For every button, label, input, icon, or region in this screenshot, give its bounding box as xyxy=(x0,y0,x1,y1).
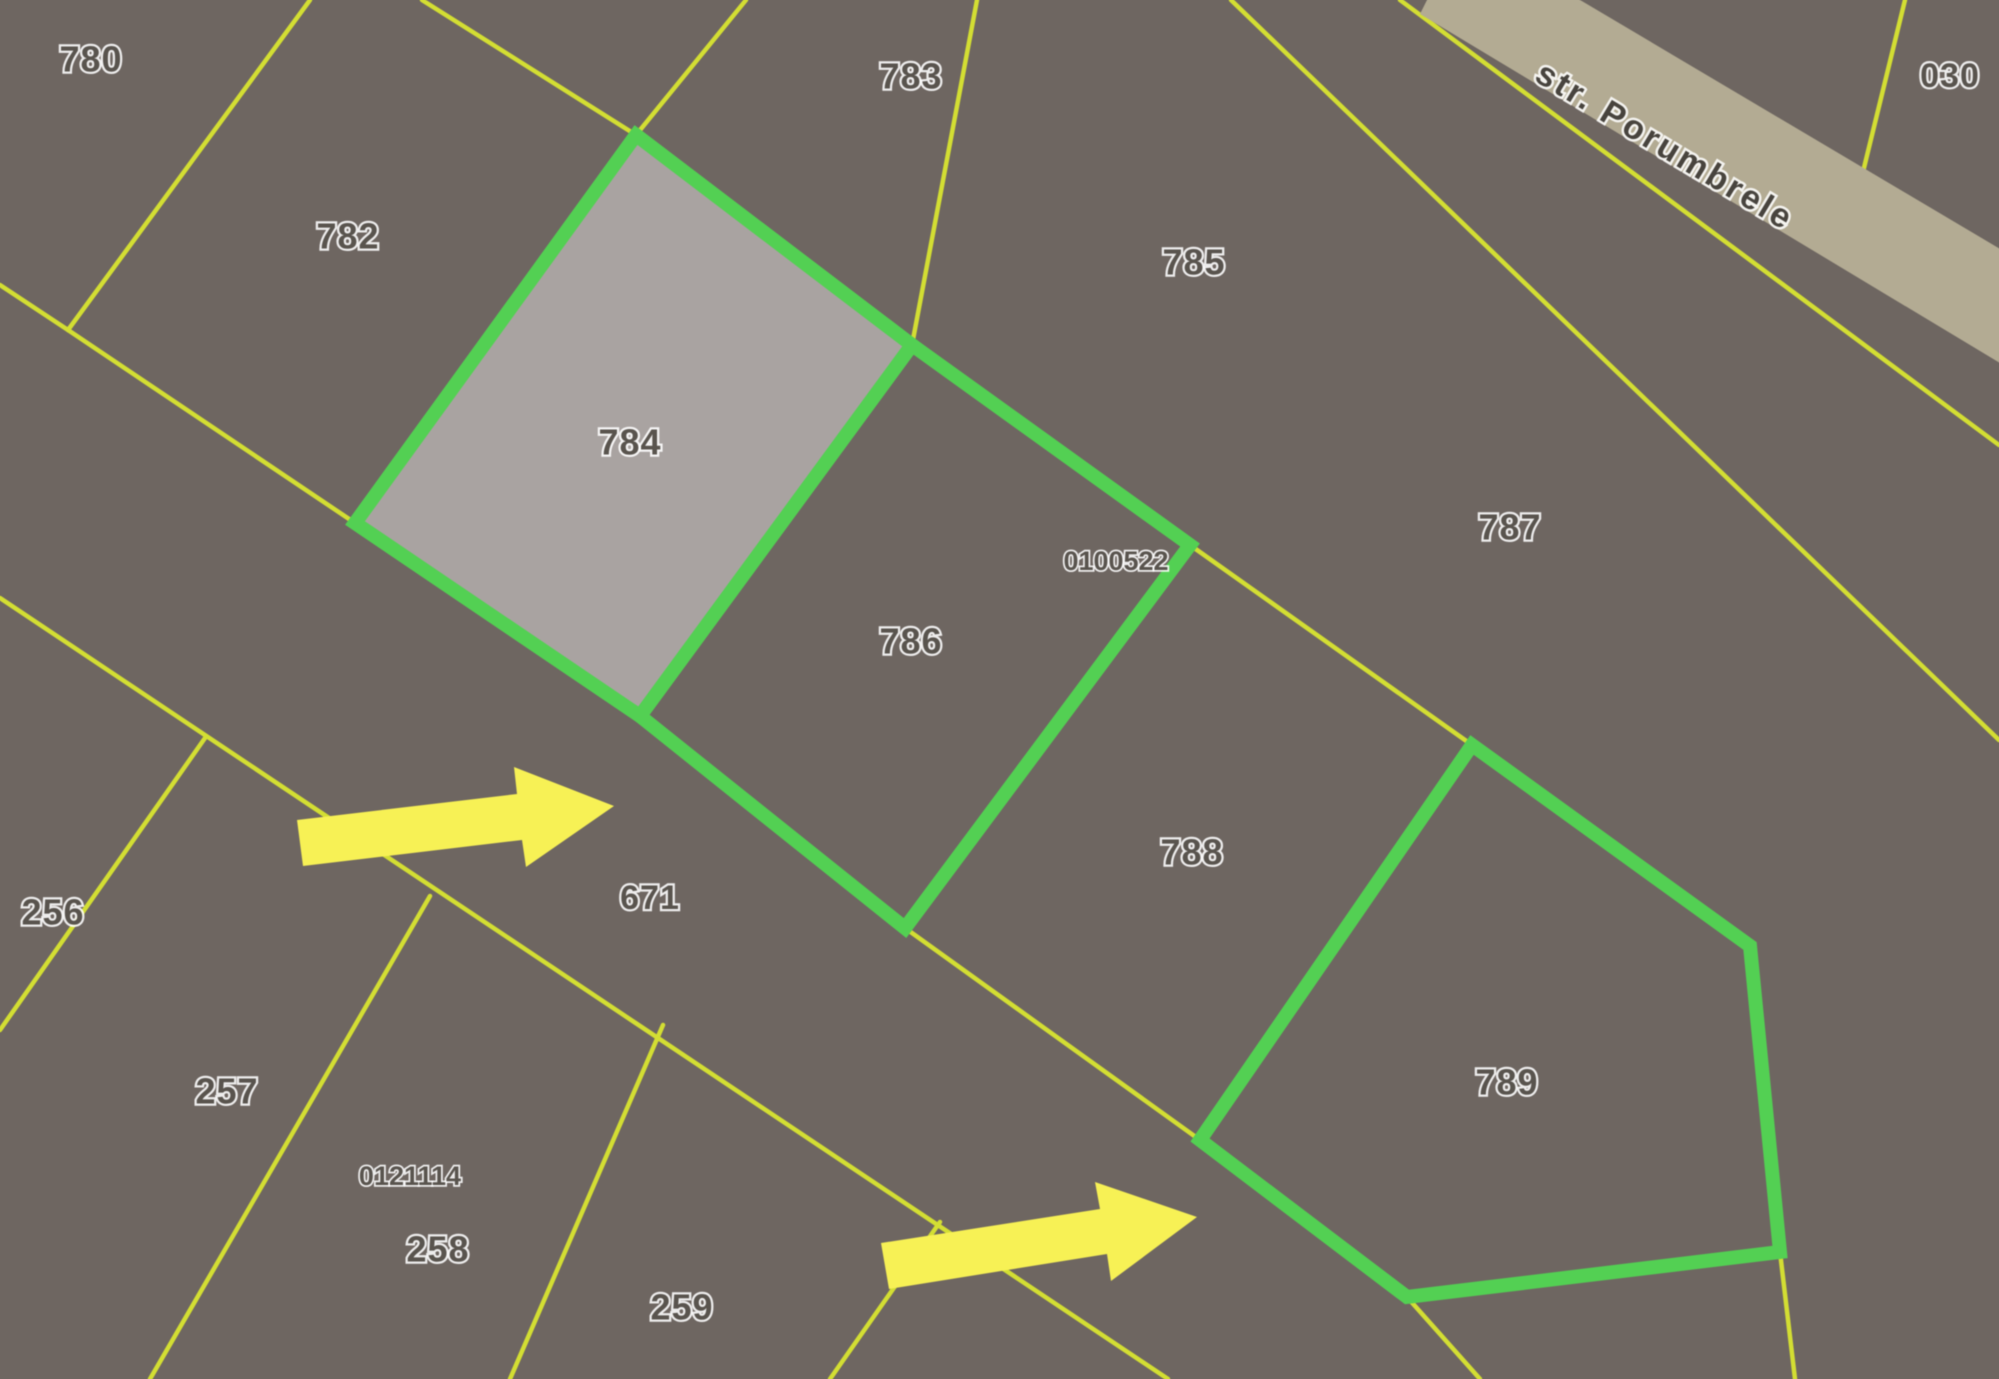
parcel-number-label-256: 256 xyxy=(21,892,84,933)
parcel-number-label-671: 671 xyxy=(620,879,680,917)
parcel-number-label-780: 780 xyxy=(59,39,122,80)
parcel-number-label-259: 259 xyxy=(650,1287,713,1328)
cadastral-map[interactable]: str. Porumbrele 780782783784785786787788… xyxy=(0,0,1999,1379)
map-background xyxy=(0,0,1999,1379)
parcel-number-label-785: 785 xyxy=(1162,242,1225,283)
cadastral-code-label-0121114: 0121114 xyxy=(359,1161,461,1191)
parcel-number-label-786: 786 xyxy=(879,621,942,662)
parcel-number-label-784: 784 xyxy=(598,422,661,463)
parcel-number-label-258: 258 xyxy=(406,1229,469,1270)
cadastral-map-screenshot: str. Porumbrele 780782783784785786787788… xyxy=(0,0,1999,1379)
parcel-number-label-789: 789 xyxy=(1475,1062,1538,1103)
parcel-number-label-787: 787 xyxy=(1478,507,1541,548)
parcel-number-label-783: 783 xyxy=(879,56,942,97)
parcel-number-label-257: 257 xyxy=(195,1071,258,1112)
parcel-number-label-030: 030 xyxy=(1920,57,1980,95)
parcel-number-label-782: 782 xyxy=(316,216,379,257)
cadastral-code-label-0100522: 0100522 xyxy=(1063,546,1168,576)
parcel-number-label-788: 788 xyxy=(1160,832,1223,873)
